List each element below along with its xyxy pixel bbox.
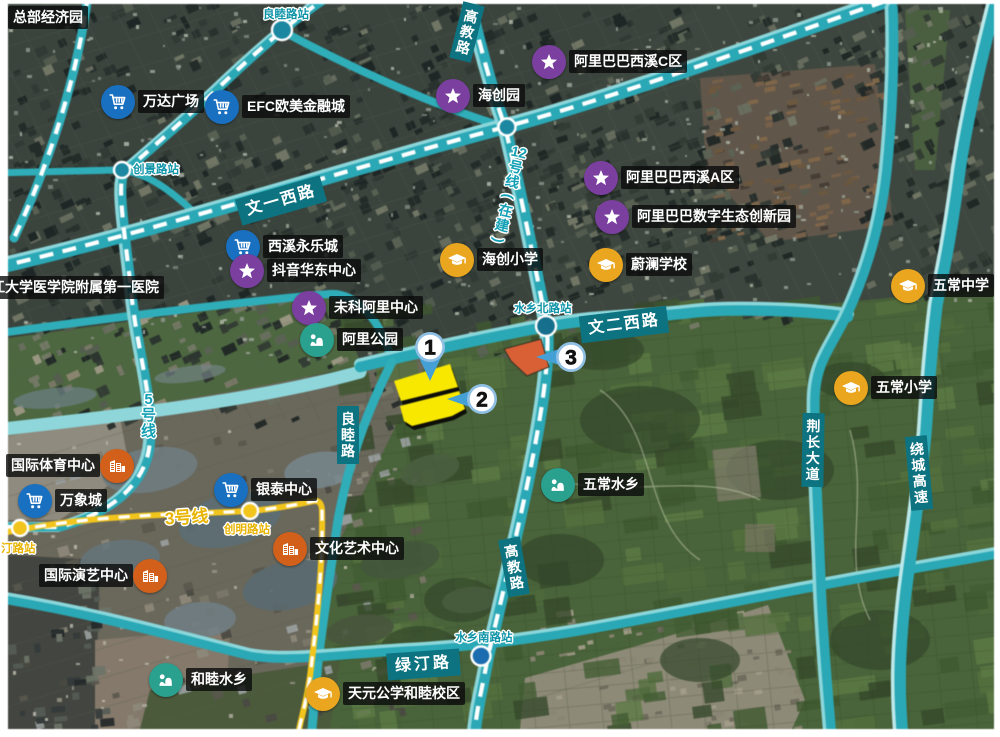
svg-text:1: 1 <box>424 337 436 360</box>
svg-text:3: 3 <box>565 347 577 370</box>
svg-text:2: 2 <box>476 389 488 412</box>
